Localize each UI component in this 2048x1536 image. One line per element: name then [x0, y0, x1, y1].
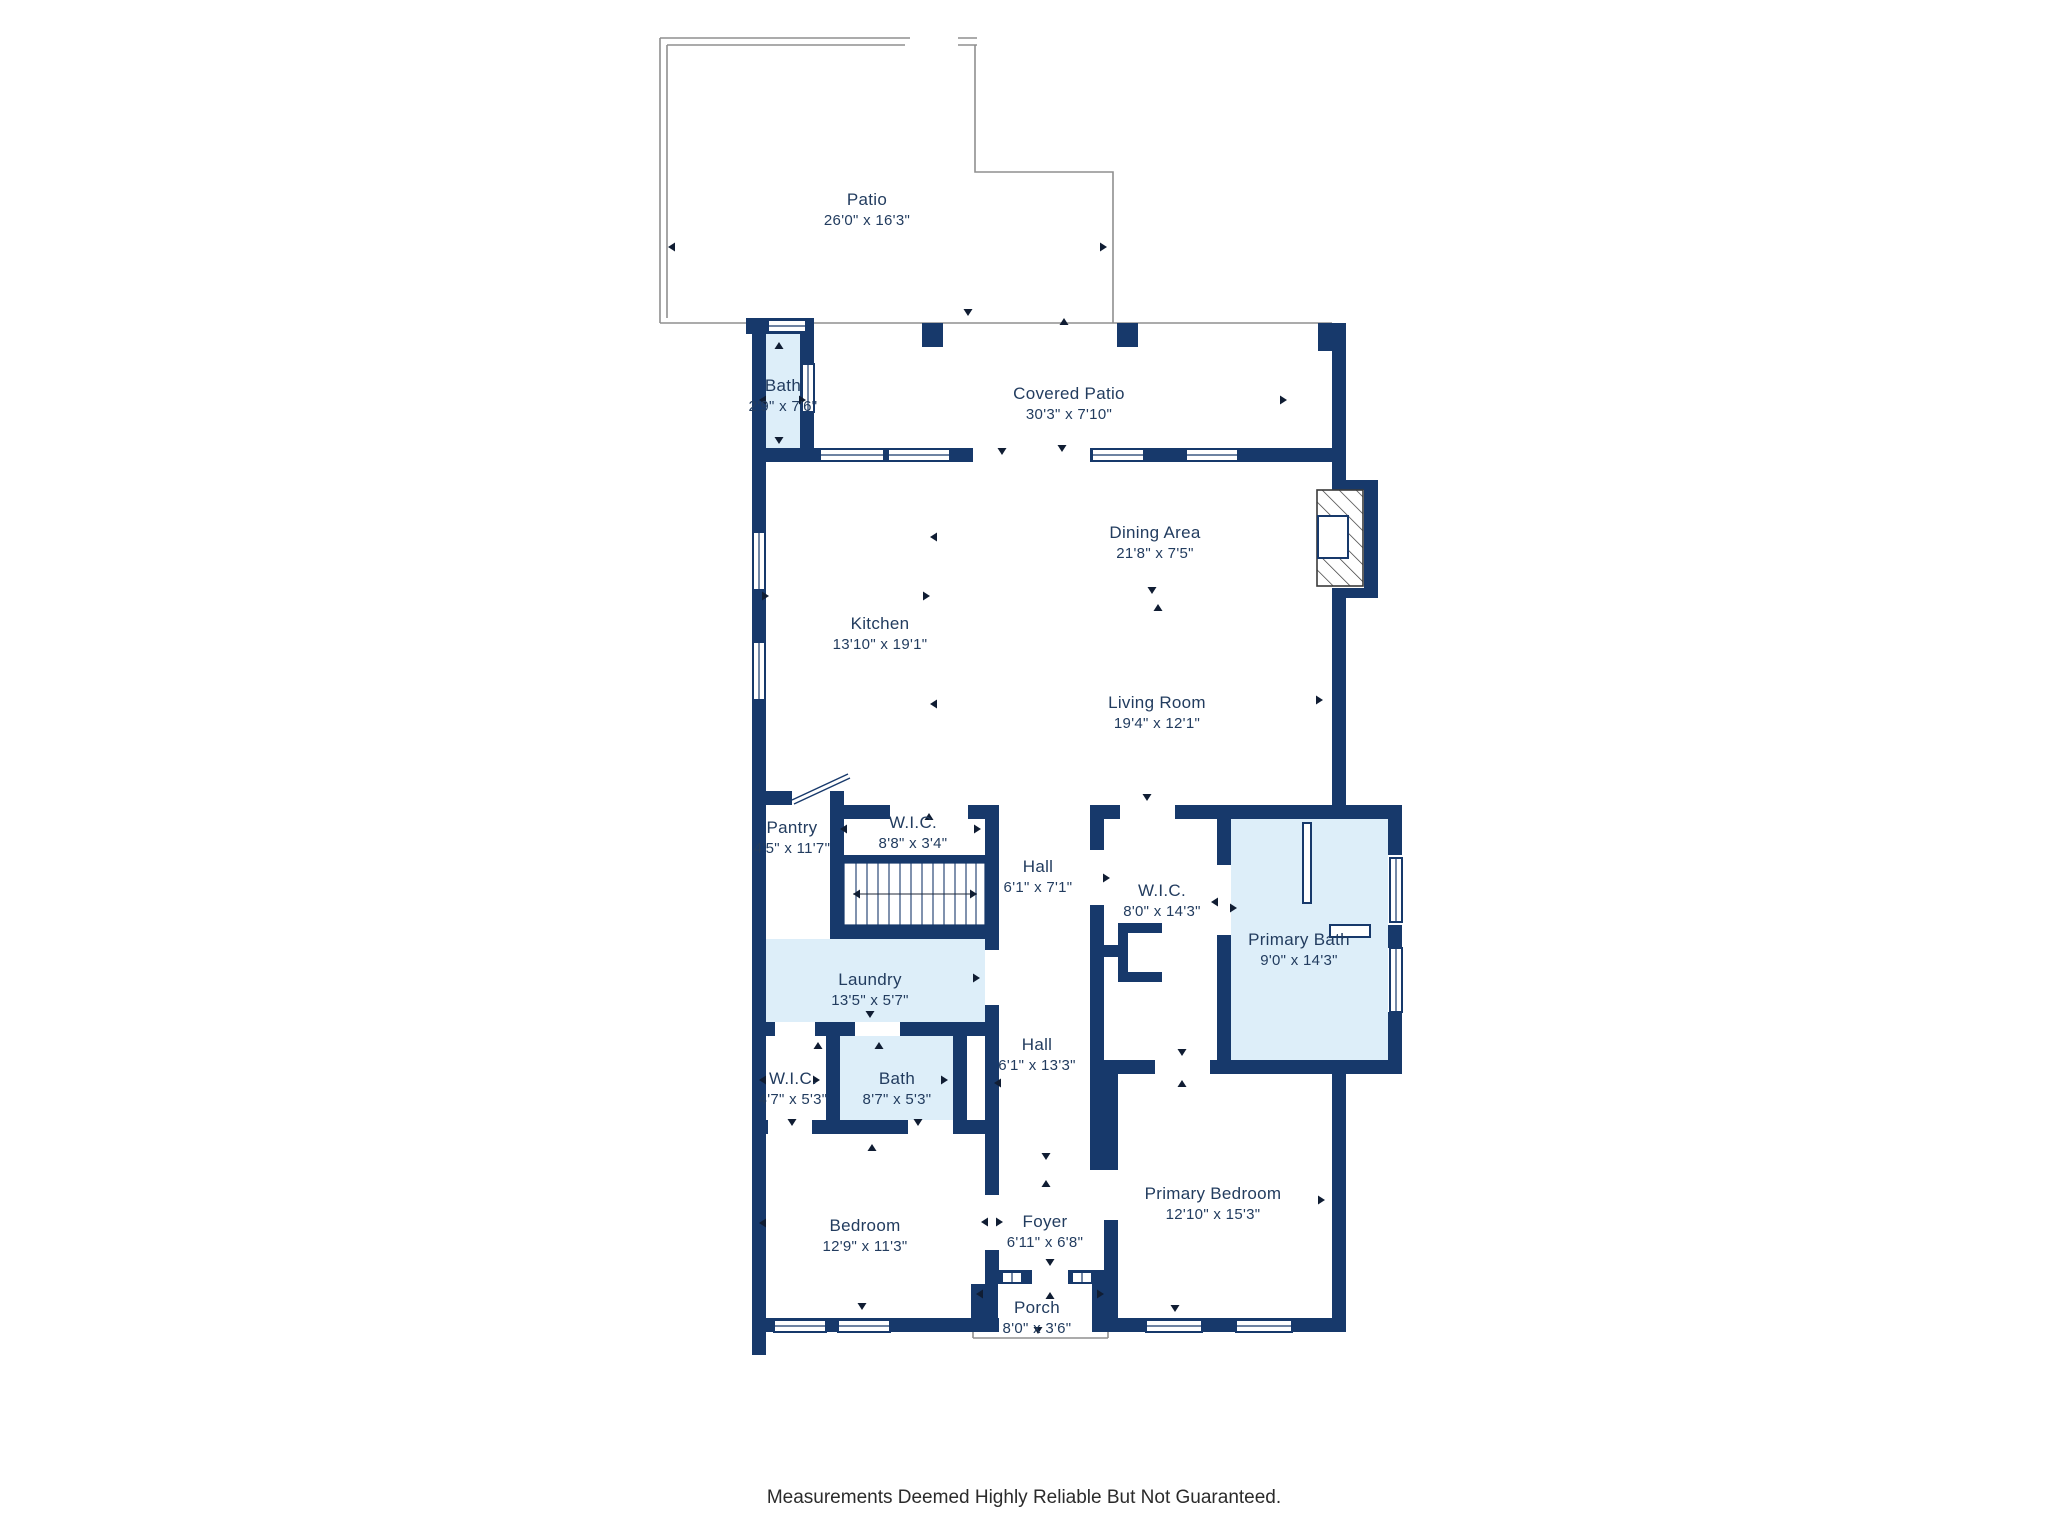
room-label-hall-upper: Hall 6'1" x 7'1"	[1004, 856, 1073, 898]
room-name: Covered Patio	[1013, 383, 1125, 405]
room-dims: 8'0" x 3'6"	[1003, 1319, 1072, 1339]
window	[1146, 1320, 1202, 1332]
room-label-foyer: Foyer 6'11" x 6'8"	[1007, 1211, 1083, 1253]
room-label-kitchen: Kitchen 13'10" x 19'1"	[833, 613, 928, 655]
room-name: Bedroom	[822, 1215, 907, 1237]
room-name: Primary Bedroom	[1145, 1183, 1282, 1205]
room-label-laundry: Laundry 13'5" x 5'7"	[831, 969, 909, 1011]
room-dims: 13'10" x 19'1"	[833, 635, 928, 655]
window	[1186, 449, 1238, 461]
room-label-patio: Patio 26'0" x 16'3"	[824, 189, 910, 231]
room-label-dining-area: Dining Area 21'8" x 7'5"	[1109, 522, 1200, 564]
room-dims: 19'4" x 12'1"	[1108, 714, 1206, 734]
room-dims: 12'9" x 11'3"	[822, 1237, 907, 1257]
room-label-primary-bath: Primary Bath 9'0" x 14'3"	[1248, 929, 1350, 971]
window	[1072, 1272, 1092, 1283]
room-label-covered-patio: Covered Patio 30'3" x 7'10"	[1013, 383, 1125, 425]
room-name: Pantry	[754, 817, 830, 839]
window	[1390, 858, 1402, 922]
window	[774, 1320, 826, 1332]
room-dims: 8'7" x 5'3"	[863, 1090, 932, 1110]
window	[820, 449, 884, 461]
room-name: Living Room	[1108, 692, 1206, 714]
room-name: Dining Area	[1109, 522, 1200, 544]
room-dims: 6'1" x 7'1"	[1004, 878, 1073, 898]
room-label-bath-lower: Bath 8'7" x 5'3"	[863, 1068, 932, 1110]
room-name: W.I.C.	[1123, 880, 1201, 902]
room-dims: 2'9" x 7'6"	[749, 397, 818, 417]
room-name: Laundry	[831, 969, 909, 991]
room-dims: 12'10" x 15'3"	[1145, 1205, 1282, 1225]
room-name: Bath	[749, 375, 818, 397]
room-name: Bath	[863, 1068, 932, 1090]
room-dims: 13'5" x 5'7"	[831, 991, 909, 1011]
room-label-living-room: Living Room 19'4" x 12'1"	[1108, 692, 1206, 734]
window	[838, 1320, 890, 1332]
room-dims: 4'7" x 5'3"	[759, 1090, 828, 1110]
room-label-primary-bedroom: Primary Bedroom 12'10" x 15'3"	[1145, 1183, 1282, 1225]
room-label-wic-primary: W.I.C. 8'0" x 14'3"	[1123, 880, 1201, 922]
room-dims: 6'11" x 6'8"	[1007, 1233, 1083, 1253]
room-name: Porch	[1003, 1297, 1072, 1319]
room-label-bedroom: Bedroom 12'9" x 11'3"	[822, 1215, 907, 1257]
room-dims: 8'0" x 14'3"	[1123, 902, 1201, 922]
room-dims: 26'0" x 16'3"	[824, 211, 910, 231]
room-name: Primary Bath	[1248, 929, 1350, 951]
room-dims: 4'5" x 11'7"	[754, 839, 830, 859]
room-dims: 6'1" x 13'3"	[998, 1056, 1076, 1076]
window	[1390, 948, 1402, 1012]
room-name: Kitchen	[833, 613, 928, 635]
closet-nook	[1104, 923, 1162, 982]
room-name: Hall	[998, 1034, 1076, 1056]
room-name: W.I.C.	[879, 812, 948, 834]
room-label-wic-bedroom: W.I.C. 4'7" x 5'3"	[759, 1068, 828, 1110]
window	[888, 449, 950, 461]
room-name: Patio	[824, 189, 910, 211]
stairs	[844, 863, 985, 925]
room-name: W.I.C.	[759, 1068, 828, 1090]
floor-plan-canvas: Patio 26'0" x 16'3" Covered Patio 30'3" …	[0, 0, 2048, 1536]
room-dims: 9'0" x 14'3"	[1248, 951, 1350, 971]
room-label-bath-top: Bath 2'9" x 7'6"	[749, 375, 818, 417]
room-label-hall-lower: Hall 6'1" x 13'3"	[998, 1034, 1076, 1076]
windows-layer	[753, 320, 1402, 1332]
window	[753, 532, 765, 590]
room-name: Foyer	[1007, 1211, 1083, 1233]
room-label-wic-kitchen: W.I.C. 8'8" x 3'4"	[879, 812, 948, 854]
room-dims: 21'8" x 7'5"	[1109, 544, 1200, 564]
room-dims: 30'3" x 7'10"	[1013, 405, 1125, 425]
window	[1002, 1272, 1022, 1283]
room-label-pantry: Pantry 4'5" x 11'7"	[754, 817, 830, 859]
room-dims: 8'8" x 3'4"	[879, 834, 948, 854]
window	[1236, 1320, 1292, 1332]
fireplace	[1317, 490, 1363, 586]
room-name: Hall	[1004, 856, 1073, 878]
window	[768, 320, 806, 332]
room-label-porch: Porch 8'0" x 3'6"	[1003, 1297, 1072, 1339]
window	[1092, 449, 1144, 461]
shower-panel	[1303, 823, 1311, 903]
disclaimer-text: Measurements Deemed Highly Reliable But …	[0, 1487, 2048, 1509]
window	[753, 642, 765, 700]
